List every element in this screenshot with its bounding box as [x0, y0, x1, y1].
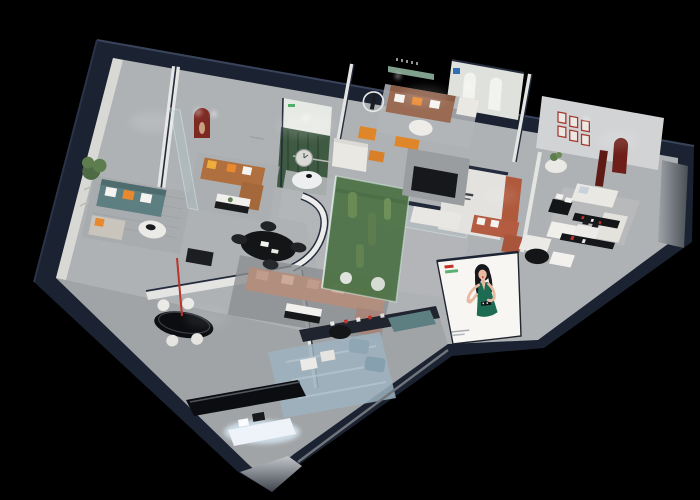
white-armchair [456, 97, 479, 118]
round-side-table [545, 159, 567, 173]
pillow-orange [122, 190, 135, 201]
belt-stud-2 [486, 302, 488, 304]
pillow-yellow [207, 160, 217, 169]
cactus [348, 192, 357, 218]
pebble-plant [340, 272, 352, 284]
terracotta-chaise [501, 234, 522, 254]
chaise-pillow [94, 218, 104, 227]
arch-niche-2 [488, 77, 502, 111]
pillow-white-2 [490, 220, 499, 228]
mural-logo-mark [288, 104, 295, 107]
black-figurine [306, 174, 312, 178]
shelf-item-white-3 [380, 313, 385, 318]
pebble-plant-2 [371, 277, 385, 291]
cactus-2 [368, 212, 376, 246]
table-plant-2 [556, 152, 562, 158]
belt-stud [482, 303, 484, 305]
blue-pouf [348, 338, 370, 355]
cactus-3 [384, 198, 391, 220]
floorplan-render [0, 0, 700, 500]
floorplan-render-stage [0, 0, 700, 500]
pillow-white-2 [140, 193, 153, 204]
shelf-item-white-2 [356, 317, 361, 322]
garden-floor [322, 176, 410, 302]
pillow-white [105, 187, 118, 198]
niche-sculpture [199, 122, 205, 134]
round-table [292, 171, 322, 189]
pillow-white [242, 166, 252, 175]
wardrobe-mirror-band [658, 160, 688, 248]
black-round-table [329, 325, 351, 339]
shelf-item-white [330, 321, 335, 326]
shelf-item-red-2 [368, 315, 372, 319]
shelf-item-red [344, 319, 348, 323]
cactus-glass-garden [322, 176, 410, 302]
pillow-orange [226, 163, 236, 172]
blue-brand-sign [453, 68, 460, 74]
blue-pouf-2 [364, 356, 386, 373]
pillow-white [476, 217, 485, 225]
cactus-4 [356, 244, 364, 268]
